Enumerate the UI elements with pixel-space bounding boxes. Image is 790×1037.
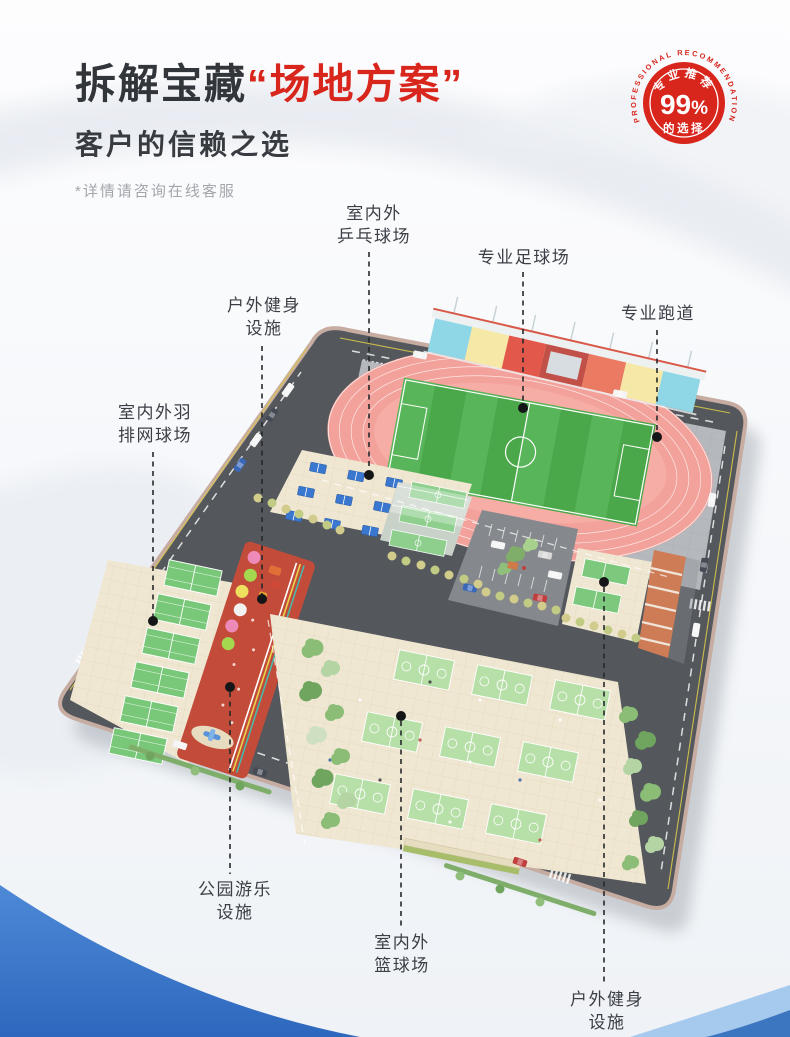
- header: 拆解宝藏“场地方案” 客户的信赖之选 *详情请咨询在线客服: [75, 50, 464, 201]
- label-badminton-courts: 室内外羽排网球场: [118, 402, 192, 448]
- label-running-track: 专业跑道: [621, 303, 695, 326]
- page-title: 拆解宝藏“场地方案”: [75, 50, 464, 110]
- label-basketball-courts: 室内外篮球场: [374, 932, 430, 978]
- title-black: 拆解宝藏: [75, 61, 247, 107]
- service-note: *详情请咨询在线客服: [75, 180, 464, 201]
- label-pingpong-courts: 室内外乒乓球场: [337, 203, 411, 249]
- promo-page: 拆解宝藏“场地方案” 客户的信赖之选 *详情请咨询在线客服 PROFESSION…: [0, 0, 790, 1037]
- title-red: “场地方案”: [247, 61, 464, 107]
- label-football-field: 专业足球场: [478, 247, 571, 270]
- label-outdoor-fitness-bottom: 户外健身设施: [570, 989, 644, 1035]
- recommendation-badge: PROFESSIONAL RECOMMENDATION 专业推荐 99% 的选择: [628, 47, 740, 159]
- label-park-playground: 公园游乐设施: [198, 879, 272, 925]
- label-outdoor-fitness-top: 户外健身设施: [227, 295, 301, 341]
- page-subtitle: 客户的信赖之选: [75, 123, 464, 163]
- badge-bottom-text: 的选择: [663, 121, 705, 135]
